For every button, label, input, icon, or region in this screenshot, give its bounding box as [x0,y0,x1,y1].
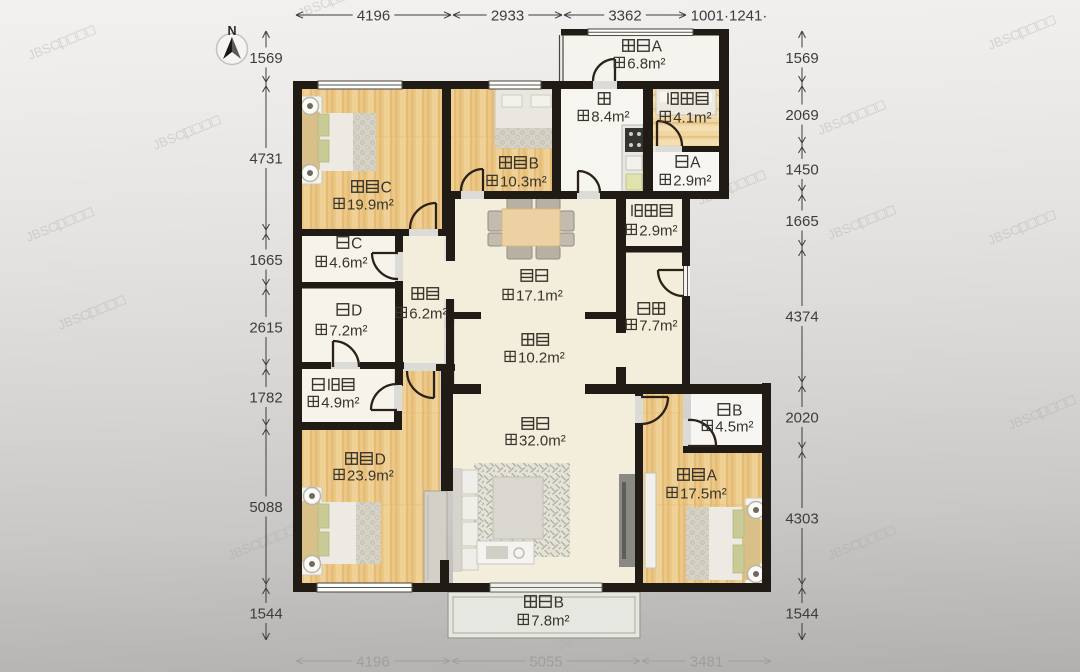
svg-text:A: A [690,155,701,172]
svg-text:4374: 4374 [785,308,818,325]
svg-text:1544: 1544 [249,605,282,622]
svg-text:1569: 1569 [785,50,818,67]
svg-text:B: B [529,156,539,173]
svg-text:2933: 2933 [491,7,524,24]
svg-text:1665: 1665 [785,213,818,230]
svg-text:C: C [351,236,362,253]
svg-text:1569: 1569 [249,50,282,67]
svg-text:4.6m²: 4.6m² [329,254,367,271]
svg-text:2.9m²: 2.9m² [639,222,677,239]
svg-text:17.5m²: 17.5m² [680,485,727,502]
svg-text:1544: 1544 [785,605,818,622]
svg-text:2069: 2069 [785,107,818,124]
svg-text:2020: 2020 [785,409,818,426]
svg-text:1450: 1450 [785,161,818,178]
svg-text:N: N [227,24,236,38]
svg-text:D: D [351,303,362,320]
svg-text:6.8m²: 6.8m² [627,55,665,72]
svg-text:17.1m²: 17.1m² [516,287,563,304]
svg-text:A: A [707,468,718,485]
svg-text:A: A [652,39,663,56]
svg-text:10.2m²: 10.2m² [518,349,565,366]
svg-text:3362: 3362 [608,7,641,24]
svg-text:1001·1241·: 1001·1241· [691,7,768,24]
svg-text:4303: 4303 [785,510,818,527]
svg-text:4196: 4196 [357,7,390,24]
svg-text:5088: 5088 [249,499,282,516]
svg-text:D: D [375,452,386,469]
svg-text:4.9m²: 4.9m² [321,394,359,411]
svg-text:8.4m²: 8.4m² [591,108,629,125]
svg-text:2.9m²: 2.9m² [673,172,711,189]
svg-text:19.9m²: 19.9m² [347,196,394,213]
svg-text:1665: 1665 [249,252,282,269]
svg-text:B: B [732,403,742,420]
svg-text:1782: 1782 [249,389,282,406]
svg-text:B: B [554,595,564,612]
svg-text:C: C [381,180,392,197]
svg-text:4.1m²: 4.1m² [673,109,711,126]
svg-text:2615: 2615 [249,319,282,336]
svg-text:32.0m²: 32.0m² [519,432,566,449]
svg-text:7.2m²: 7.2m² [329,322,367,339]
svg-text:7.7m²: 7.7m² [639,317,677,334]
svg-text:3481: 3481 [690,653,723,670]
svg-text:5055: 5055 [529,653,562,670]
svg-text:23.9m²: 23.9m² [347,467,394,484]
svg-text:4.5m²: 4.5m² [715,418,753,435]
svg-text:4196: 4196 [356,653,389,670]
svg-text:7.8m²: 7.8m² [531,612,569,629]
svg-text:6.2m²: 6.2m² [409,305,447,322]
svg-text:4731: 4731 [249,150,282,167]
svg-text:10.3m²: 10.3m² [500,173,547,190]
